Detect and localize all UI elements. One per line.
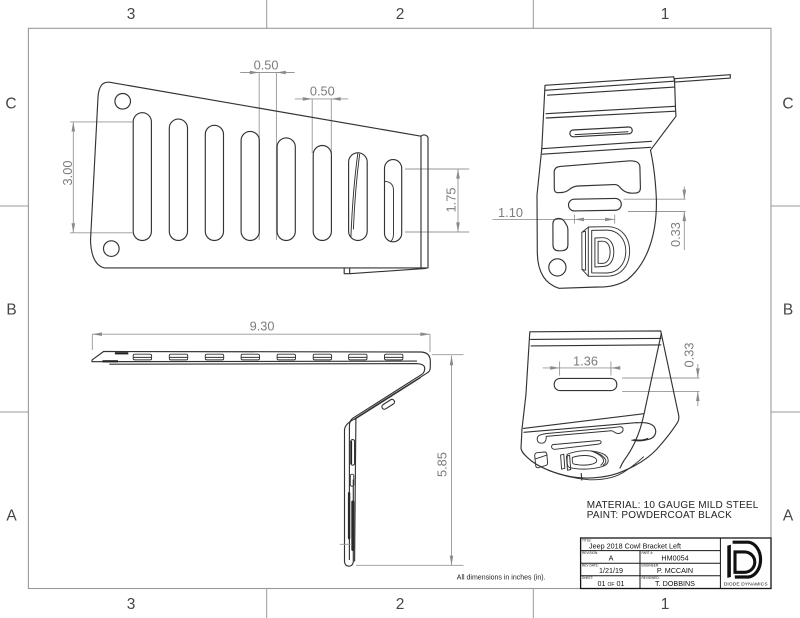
svg-text:PART #:: PART #: — [642, 551, 654, 555]
svg-text:0.50: 0.50 — [310, 83, 335, 98]
svg-text:B: B — [6, 302, 16, 319]
svg-text:3: 3 — [127, 596, 136, 613]
svg-text:HM0054: HM0054 — [661, 554, 688, 563]
svg-text:A: A — [6, 508, 17, 525]
svg-text:MATERIAL: 10 GAUGE MILD STEEL: MATERIAL: 10 GAUGE MILD STEEL — [587, 500, 759, 511]
svg-text:SHEET:: SHEET: — [582, 576, 593, 580]
svg-text:2: 2 — [396, 596, 405, 613]
svg-text:B: B — [783, 302, 793, 319]
svg-text:1: 1 — [661, 6, 670, 23]
svg-text:REVISION:: REVISION: — [582, 551, 598, 555]
svg-text:1.10: 1.10 — [498, 205, 523, 220]
svg-text:0.33: 0.33 — [682, 343, 697, 368]
svg-text:1.36: 1.36 — [573, 353, 598, 368]
svg-text:Jeep 2018 Cowl Bracket Left: Jeep 2018 Cowl Bracket Left — [589, 541, 681, 550]
svg-text:P. MCCAIN: P. MCCAIN — [657, 566, 693, 575]
svg-text:0.33: 0.33 — [668, 222, 683, 247]
svg-text:1.75: 1.75 — [443, 188, 458, 213]
svg-text:C: C — [782, 96, 793, 113]
svg-text:All dimensions in inches (in).: All dimensions in inches (in). — [457, 575, 546, 582]
svg-text:A: A — [783, 508, 794, 525]
svg-text:DIODE DYNAMICS: DIODE DYNAMICS — [724, 581, 768, 587]
svg-text:2: 2 — [396, 6, 405, 23]
svg-text:A: A — [609, 554, 614, 563]
svg-text:9.30: 9.30 — [250, 318, 275, 333]
svg-text:3.00: 3.00 — [60, 161, 75, 186]
svg-text:1: 1 — [661, 596, 670, 613]
svg-text:REV DATE:: REV DATE: — [582, 564, 599, 568]
svg-text:3: 3 — [127, 6, 136, 23]
svg-text:5.85: 5.85 — [434, 452, 449, 477]
svg-text:C: C — [5, 96, 16, 113]
svg-text:T. DOBBINS: T. DOBBINS — [655, 579, 695, 588]
svg-text:0.50: 0.50 — [254, 57, 279, 72]
svg-text:1/21/19: 1/21/19 — [599, 566, 623, 575]
svg-text:PAINT: POWDERCOAT BLACK: PAINT: POWDERCOAT BLACK — [587, 510, 732, 521]
